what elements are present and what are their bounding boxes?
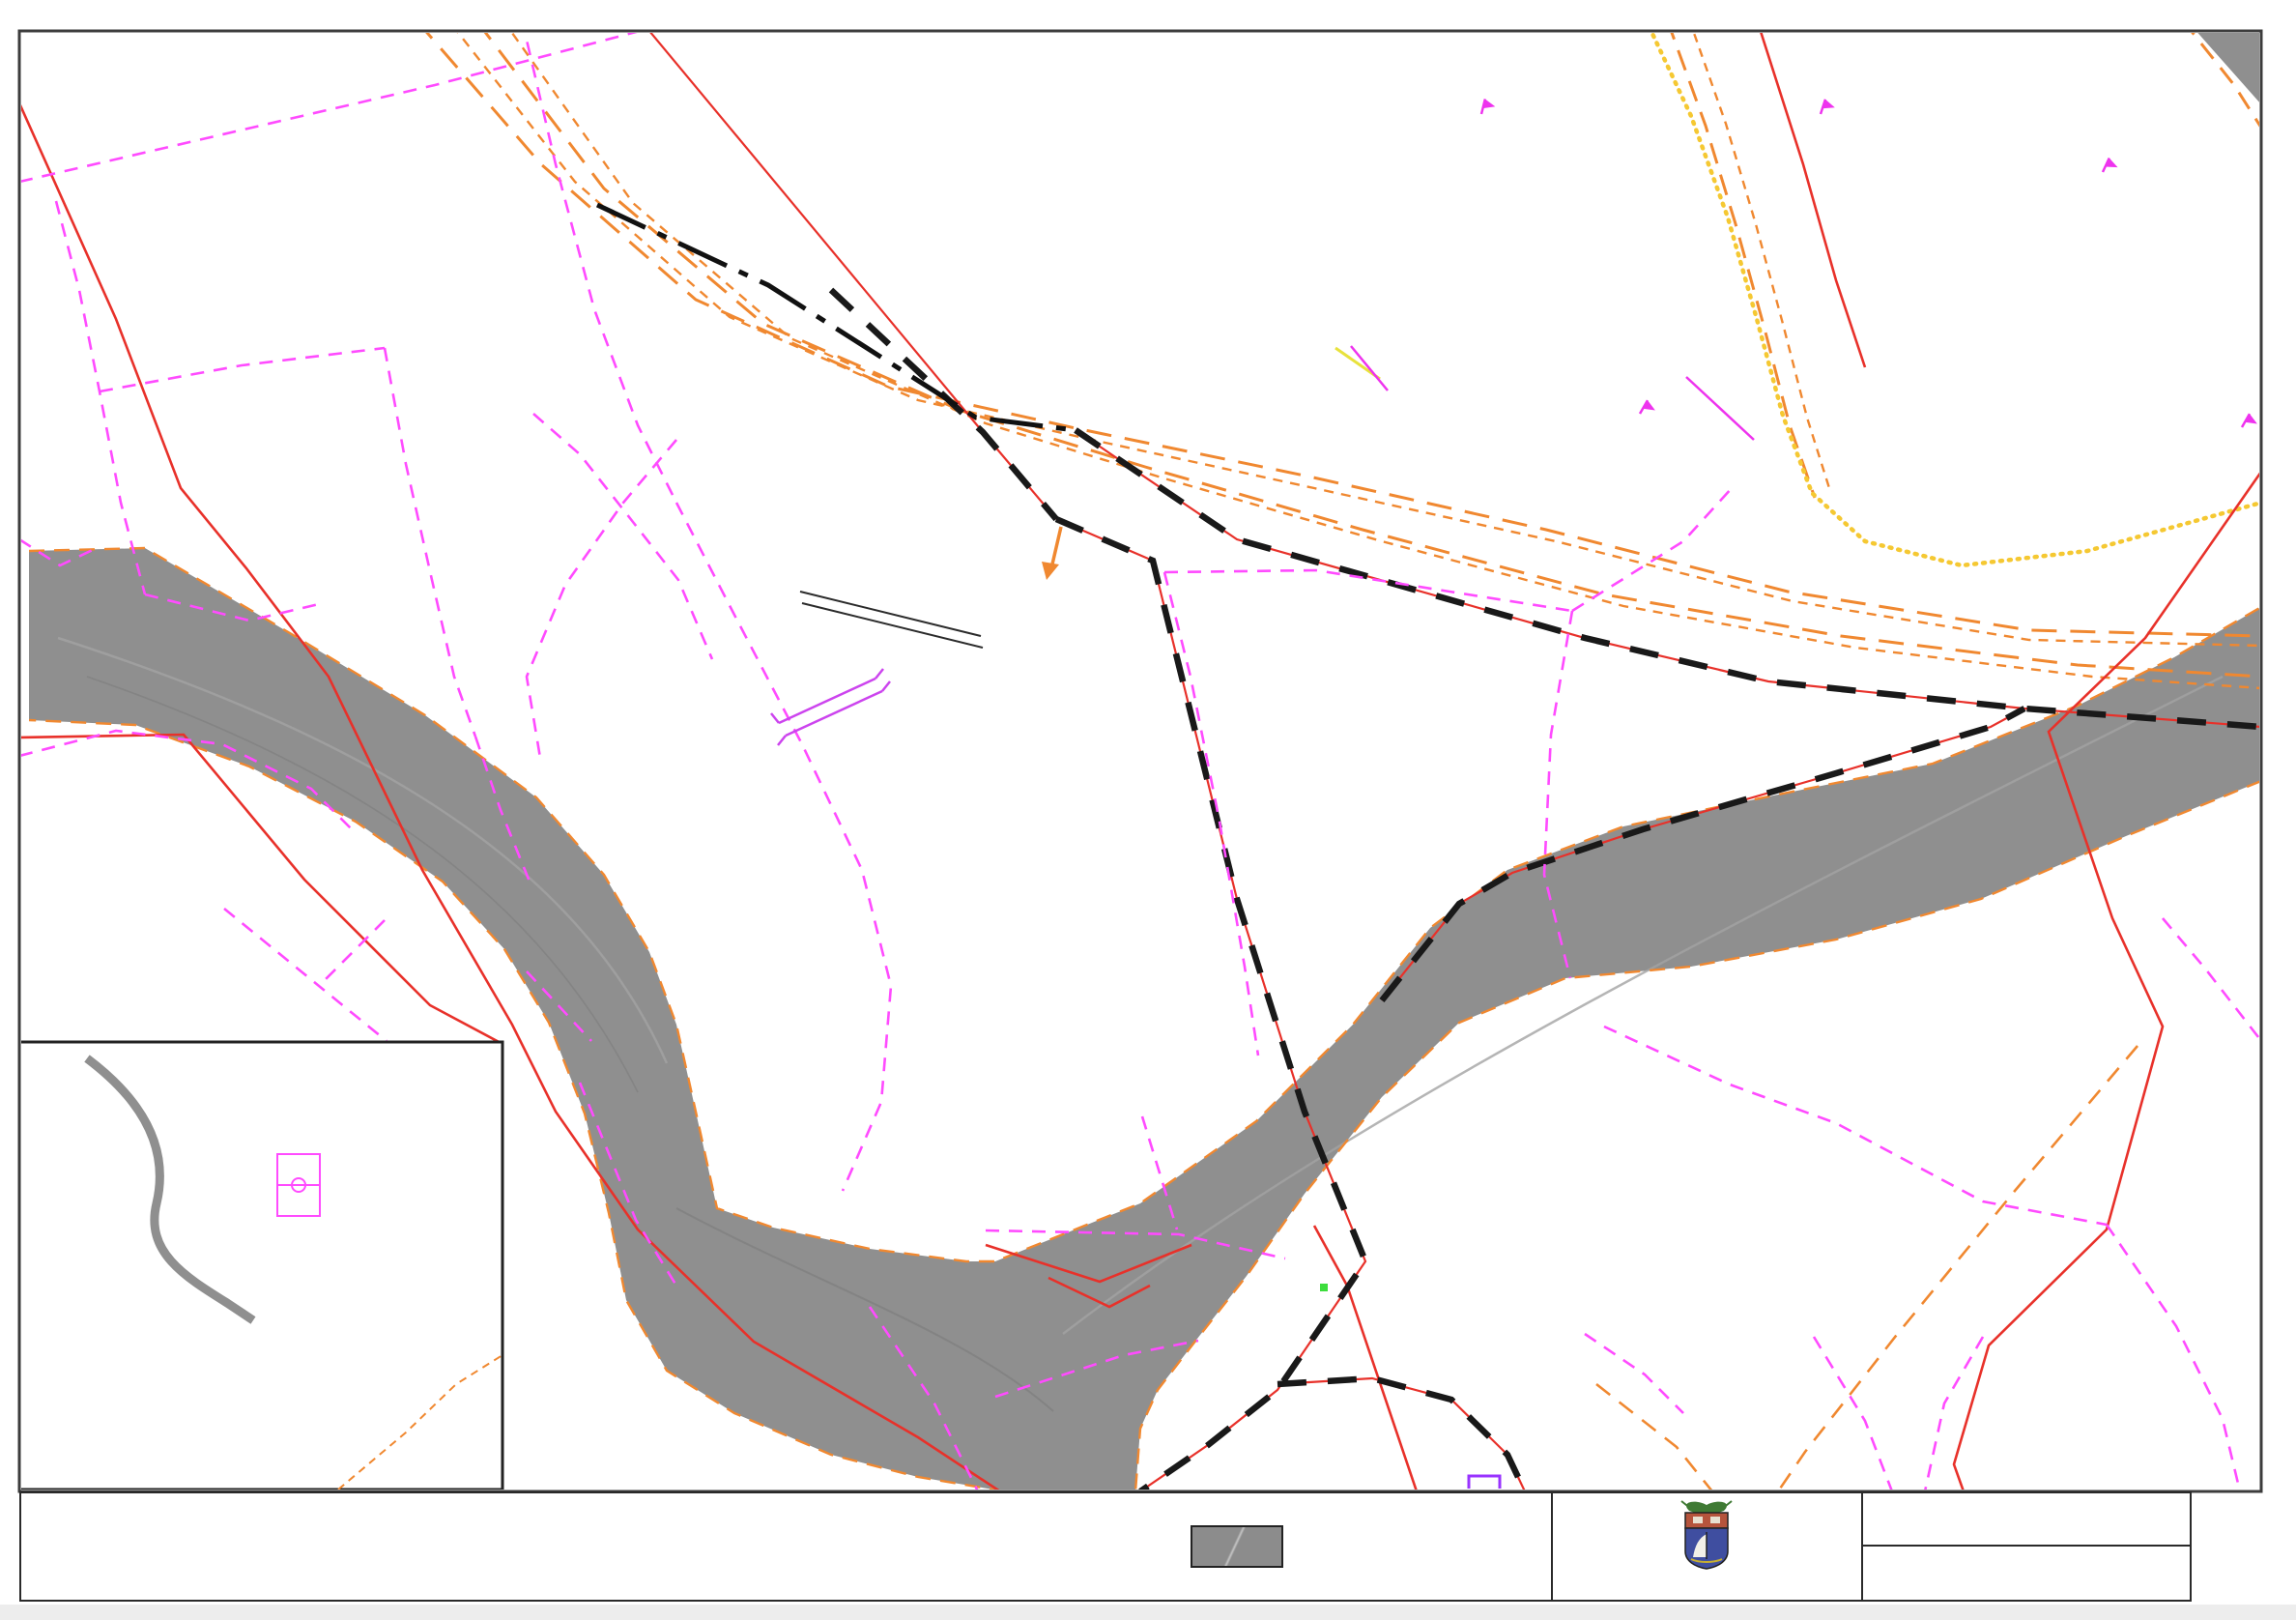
road-axis-dashdot <box>597 205 1076 430</box>
survey-point <box>1320 1284 1328 1291</box>
school-gate <box>771 669 890 745</box>
inset-map <box>19 1042 502 1490</box>
date-cell <box>1861 1545 2192 1602</box>
orientation-arrow <box>1042 527 1061 580</box>
corner-bracket <box>1469 1476 1500 1489</box>
plan-sheet <box>0 0 2296 1620</box>
map-content <box>16 14 2261 1491</box>
city-crest-icon <box>1670 1497 1743 1573</box>
title-cell <box>19 1491 1553 1602</box>
scale-cell <box>1861 1491 2192 1547</box>
legend <box>1191 1525 1301 1568</box>
map-canvas <box>0 0 2296 1620</box>
yellow-lines <box>1335 19 2261 565</box>
sheet-edge <box>0 1605 2296 1620</box>
legend-swatch <box>1191 1525 1283 1568</box>
